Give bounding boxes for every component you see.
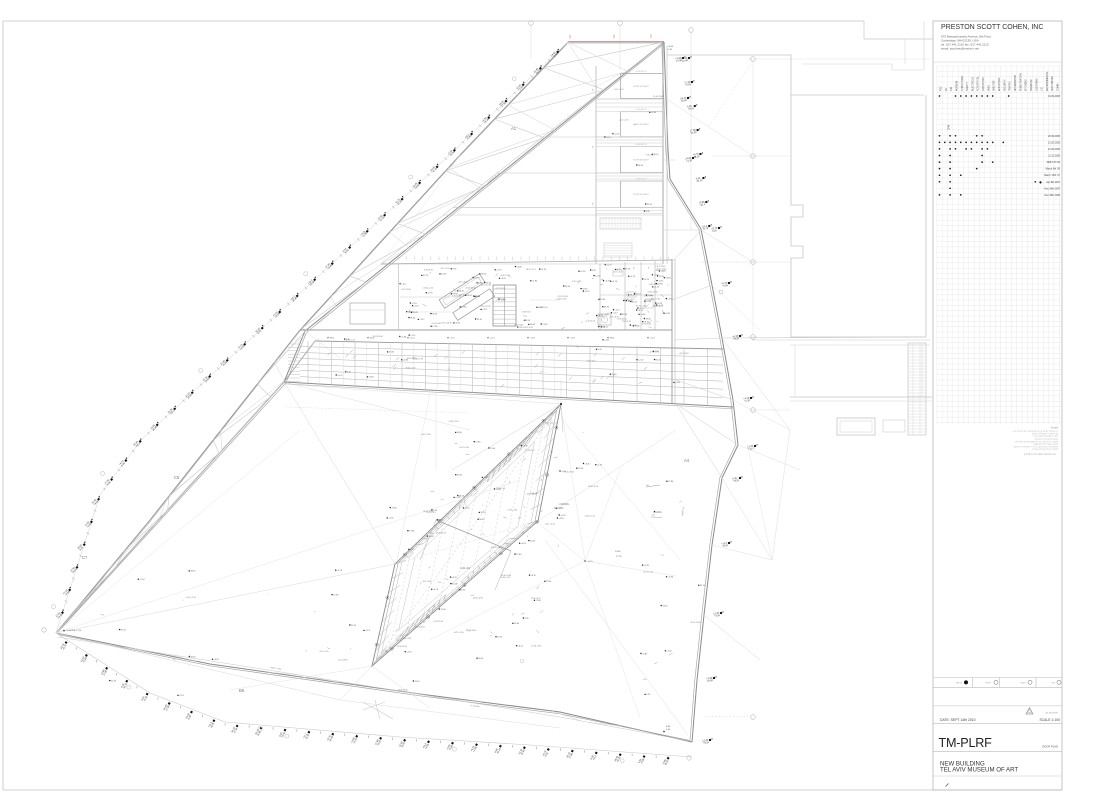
- svg-text:28.45: 28.45: [190, 571, 196, 573]
- svg-text:+4.55: +4.55: [501, 278, 507, 280]
- svg-text:12.40: 12.40: [546, 581, 552, 583]
- svg-text:12.40: 12.40: [490, 448, 496, 450]
- svg-text:24.60 32.10: 24.60 32.10: [466, 288, 476, 290]
- svg-text:FEB 17th 06: FEB 17th 06: [1047, 161, 1061, 164]
- svg-text:ראשוןי: ראשוןי: [1020, 683, 1026, 685]
- svg-text:+11.2: +11.2: [613, 313, 619, 315]
- svg-text:12.40 24.60: 12.40 24.60: [653, 96, 663, 98]
- svg-text:+11.2 +4.55: +11.2 +4.55: [440, 268, 450, 270]
- svg-text:28.45 +6.70: 28.45 +6.70: [405, 368, 415, 370]
- svg-text:9.35 17.80: 9.35 17.80: [452, 295, 461, 297]
- svg-text:PRESTON SCOTT COHEN, INC: PRESTON SCOTT COHEN, INC: [941, 24, 1043, 31]
- svg-text:FENESTRATION: FENESTRATION: [1019, 73, 1022, 91]
- svg-text:28.45: 28.45: [432, 313, 438, 315]
- svg-text:17.80: 17.80: [578, 468, 584, 470]
- svg-text:3850: 3850: [330, 338, 334, 340]
- svg-text:+2.10: +2.10: [523, 445, 529, 447]
- svg-text:PA: PA: [945, 88, 948, 91]
- svg-text:+3.85: +3.85: [642, 653, 648, 655]
- svg-text:+6.70 +11.2: +6.70 +11.2: [426, 512, 436, 514]
- svg-text:+8.25: +8.25: [644, 322, 650, 324]
- svg-text:WATERPROOF: WATERPROOF: [1014, 74, 1017, 91]
- svg-text:24.60: 24.60: [662, 605, 668, 607]
- svg-text:+24.85 SKYLT: +24.85 SKYLT: [635, 71, 648, 73]
- svg-text:32.10 +4.55: 32.10 +4.55: [636, 306, 646, 308]
- svg-text:32.10: 32.10: [415, 681, 421, 683]
- svg-text:17.80: 17.80: [409, 531, 415, 533]
- svg-text:+3.85: +3.85: [640, 314, 646, 316]
- svg-text:+6.70 17.80: +6.70 17.80: [401, 289, 411, 291]
- svg-text:32.10: 32.10: [647, 204, 653, 206]
- svg-text:10.05.2005: 10.05.2005: [1048, 141, 1061, 144]
- svg-text:SCALE 1:100: SCALE 1:100: [1039, 718, 1060, 722]
- svg-text:24.60 +2.10: 24.60 +2.10: [585, 515, 595, 517]
- svg-text:SHELTER: SHELTER: [994, 80, 996, 91]
- svg-text:24.60 28.45: 24.60 28.45: [415, 627, 425, 629]
- svg-text:SECURITY: SECURITY: [1004, 79, 1006, 91]
- svg-text:32.10: 32.10: [423, 275, 429, 277]
- svg-text:+6.70: +6.70: [337, 570, 343, 572]
- svg-text:+11.2: +11.2: [636, 294, 642, 296]
- svg-text:+4.55: +4.55: [406, 652, 412, 654]
- svg-text:+4.55: +4.55: [541, 269, 547, 271]
- svg-text:March 15th '07: March 15th '07: [1044, 174, 1060, 177]
- svg-text:28.45: 28.45: [459, 495, 465, 497]
- svg-text:+6.70: +6.70: [605, 281, 611, 283]
- svg-text:28.45: 28.45: [612, 374, 618, 376]
- svg-text:+6.70: +6.70: [531, 575, 537, 577]
- svg-text:+8.25 +3.85: +8.25 +3.85: [507, 510, 517, 512]
- svg-text:2%: 2%: [652, 515, 655, 517]
- svg-text:+3.85 12.40: +3.85 12.40: [448, 421, 458, 423]
- svg-text:+5.90: +5.90: [668, 577, 674, 579]
- svg-text:+24.85 SKYLT: +24.85 SKYLT: [635, 109, 648, 111]
- svg-text:DATE: SEPT 14th 2010: DATE: SEPT 14th 2010: [940, 718, 976, 722]
- svg-text:+3.85: +3.85: [542, 324, 548, 326]
- svg-text:24.60 32.10: 24.60 32.10: [588, 486, 598, 488]
- svg-text:+8.25 +6.70: +8.25 +6.70: [656, 269, 666, 271]
- svg-text:32.10: 32.10: [700, 585, 706, 587]
- svg-text:24.60 24.60: 24.60 24.60: [501, 575, 511, 577]
- svg-text:+4.55: +4.55: [668, 298, 674, 300]
- svg-text:+4.55 +11.2: +4.55 +11.2: [460, 568, 470, 570]
- svg-text:+11.2: +11.2: [401, 284, 407, 286]
- svg-text:+8.25: +8.25: [658, 280, 664, 282]
- svg-text:24.60: 24.60: [500, 299, 506, 301]
- svg-text:+14.8: +14.8: [530, 338, 535, 340]
- svg-text:מידות הבניין יש לבדוק הבניין כ: מידות הבניין יש לבדוק הבניין כל המידות כ…: [1014, 446, 1059, 449]
- svg-text:17.80: 17.80: [389, 352, 395, 354]
- svg-text:LIGHTNING: LIGHTNING: [1036, 78, 1038, 91]
- svg-text:24.60 17.80: 24.60 17.80: [648, 292, 658, 294]
- svg-text:9.35 32.10: 9.35 32.10: [560, 504, 569, 506]
- svg-text:+4.55 +8.25: +4.55 +8.25: [458, 281, 468, 283]
- svg-text:32.10 28.45: 32.10 28.45: [442, 323, 452, 325]
- svg-text:מרחבים וכו': מרחבים וכו': [1045, 711, 1058, 715]
- svg-text:ELECTRICAL: ELECTRICAL: [971, 76, 974, 91]
- svg-text:+3.85: +3.85: [651, 112, 657, 114]
- svg-text:+8.25 32.10: +8.25 32.10: [398, 690, 408, 692]
- svg-text:12.40 12.40: 12.40 12.40: [556, 299, 566, 301]
- svg-text:AUDITORIUM: AUDITORIUM: [1051, 76, 1054, 91]
- svg-text:24.60: 24.60: [369, 377, 375, 379]
- svg-text:+2.10: +2.10: [654, 287, 660, 289]
- svg-text:32.10 12.40: 32.10 12.40: [558, 296, 568, 298]
- svg-text:17.80: 17.80: [432, 326, 438, 328]
- svg-text:+6.70: +6.70: [337, 375, 343, 377]
- svg-text:Dec 29th 2008: Dec 29th 2008: [1044, 194, 1060, 197]
- svg-text:17.80: 17.80: [536, 600, 542, 602]
- svg-text:+4.55: +4.55: [667, 651, 673, 653]
- svg-text:28.45: 28.45: [410, 317, 416, 319]
- svg-text:+4.55: +4.55: [496, 489, 502, 491]
- svg-text:28.45: 28.45: [622, 314, 628, 316]
- svg-text:+15.2: +15.2: [450, 338, 455, 340]
- svg-text:+8.25: +8.25: [665, 313, 671, 315]
- svg-text:C5: C5: [174, 475, 180, 480]
- svg-text:28.45 28.45: 28.45 28.45: [436, 533, 446, 535]
- svg-text:10.45: 10.45: [668, 46, 674, 48]
- svg-text:+3.85: +3.85: [644, 565, 650, 567]
- svg-text:32.10: 32.10: [632, 301, 638, 303]
- svg-text:12.40: 12.40: [441, 274, 447, 276]
- svg-text:+4.55 +2.10: +4.55 +2.10: [186, 597, 196, 599]
- svg-text:+4.55 24.60: +4.55 24.60: [679, 353, 689, 355]
- svg-text:מידות באתר מידות לגרסאות: מידות באתר מידות לגרסאות: [1033, 443, 1058, 446]
- svg-text:TEL AVIV MUSEUM OF ART: TEL AVIV MUSEUM OF ART: [940, 766, 1018, 773]
- svg-text:11.22.2005: 11.22.2005: [1048, 155, 1060, 158]
- svg-text:9.35 +3.85: 9.35 +3.85: [572, 281, 581, 283]
- svg-text:KITCHENS: KITCHENS: [1026, 79, 1028, 91]
- svg-text:ROOF SKYLIGHT: ROOF SKYLIGHT: [633, 159, 649, 161]
- svg-text:+2.10 +4.55: +2.10 +4.55: [614, 89, 624, 91]
- svg-text:17.80 +3.85: 17.80 +3.85: [531, 646, 541, 648]
- svg-text:ENVIRONMENTAL: ENVIRONMENTAL: [1046, 71, 1049, 91]
- svg-text:+4.55 24.60: +4.55 24.60: [431, 323, 441, 325]
- svg-text:COMM.: COMM.: [1058, 83, 1060, 91]
- svg-text:+8.25 +2.10: +8.25 +2.10: [544, 423, 554, 425]
- svg-text:+6.70: +6.70: [630, 276, 636, 278]
- svg-text:32.10: 32.10: [653, 154, 659, 156]
- svg-text:27 26: 27 26: [616, 556, 622, 558]
- svg-text:17.80: 17.80: [516, 554, 522, 556]
- svg-text:SAFETY: SAFETY: [966, 82, 969, 91]
- svg-text:STRUCTURAL: STRUCTURAL: [961, 75, 964, 91]
- svg-text:+11.2: +11.2: [606, 137, 612, 139]
- svg-text:+15.2: +15.2: [650, 338, 655, 340]
- svg-text:+8.25 +11.2: +8.25 +11.2: [529, 493, 539, 495]
- svg-text:+3.85: +3.85: [517, 266, 523, 268]
- svg-text:+8.25 +2.10: +8.25 +2.10: [454, 632, 464, 634]
- svg-text:28.45: 28.45: [413, 312, 419, 314]
- svg-text:+4.55: +4.55: [557, 508, 563, 510]
- svg-text:ROOF PLAN: ROOF PLAN: [1042, 745, 1058, 749]
- svg-text:24.60 +3.85: 24.60 +3.85: [473, 597, 483, 599]
- svg-text:+4.55: +4.55: [559, 518, 565, 520]
- svg-text:+6.70 +8.25: +6.70 +8.25: [613, 272, 623, 274]
- svg-text:TM-PLRF: TM-PLRF: [939, 736, 993, 750]
- svg-text:+2.10 32.10: +2.10 32.10: [585, 321, 595, 323]
- svg-text:+2.10 12.40: +2.10 12.40: [433, 621, 443, 623]
- svg-text:24.60: 24.60: [565, 286, 571, 288]
- svg-text:ROOF SKYLIGHT: ROOF SKYLIGHT: [633, 86, 649, 88]
- svg-text:+8.25: +8.25: [518, 646, 524, 648]
- svg-text:+11.2 32.10: +11.2 32.10: [495, 288, 505, 290]
- svg-text:+6.70 9.35: +6.70 9.35: [525, 450, 534, 452]
- svg-text:TRAFFIC: TRAFFIC: [1009, 81, 1012, 91]
- svg-text:+6.15: +6.15: [588, 561, 594, 563]
- svg-text:+6.70 28.45: +6.70 28.45: [641, 324, 651, 326]
- svg-text:B6: B6: [239, 688, 245, 693]
- svg-text:+4.55 12.40: +4.55 12.40: [481, 285, 491, 287]
- svg-text:19.05: 19.05: [615, 551, 621, 553]
- svg-text:+6.70: +6.70: [433, 589, 439, 591]
- svg-text:הערות: הערות: [1051, 427, 1059, 430]
- svg-text:28.45: 28.45: [646, 318, 652, 320]
- svg-text:+4.55: +4.55: [604, 340, 610, 342]
- svg-text:ROOF SKYLIGHT: ROOF SKYLIGHT: [633, 194, 649, 196]
- svg-text:17.80: 17.80: [475, 442, 481, 444]
- svg-text:HANDICAP: HANDICAP: [1030, 79, 1033, 91]
- svg-text:17.80: 17.80: [392, 507, 398, 509]
- svg-text:+3.85 17.80: +3.85 17.80: [420, 434, 430, 436]
- svg-text:12.40: 12.40: [111, 680, 117, 682]
- svg-text:19.09.2005: 19.09.2005: [1048, 95, 1061, 98]
- svg-text:+4.55 9.35: +4.55 9.35: [524, 327, 533, 329]
- svg-text:+4.55: +4.55: [214, 659, 220, 661]
- svg-text:24.60: 24.60: [666, 278, 672, 280]
- svg-text:28.45: 28.45: [481, 274, 487, 276]
- svg-text:32.10: 32.10: [452, 583, 458, 585]
- svg-text:+4.55 +8.25: +4.55 +8.25: [609, 317, 619, 319]
- svg-text:24.60: 24.60: [638, 165, 644, 167]
- svg-text:CPM: CPM: [949, 125, 951, 130]
- svg-text:+6.70: +6.70: [496, 270, 502, 272]
- svg-text:32.10: 32.10: [477, 319, 483, 321]
- svg-text:MUSEUM: MUSEUM: [957, 81, 959, 91]
- svg-text:+15.2: +15.2: [490, 338, 495, 340]
- svg-text:+11.2: +11.2: [482, 309, 488, 311]
- svg-text:+11.2 12.40: +11.2 12.40: [422, 581, 432, 583]
- svg-text:17.80 9.35: 17.80 9.35: [522, 312, 531, 314]
- svg-text:+6.70: +6.70: [452, 577, 458, 579]
- svg-text:+3.85: +3.85: [538, 307, 544, 309]
- svg-text:28.45 +11.2: 28.45 +11.2: [526, 269, 536, 271]
- svg-text:32.10 12.40: 32.10 12.40: [690, 622, 700, 624]
- svg-text:+6.70 +4.55: +6.70 +4.55: [643, 571, 653, 573]
- svg-text:+3.85 +3.85: +3.85 +3.85: [650, 298, 660, 300]
- svg-text:כל המידות יש לבדוק יש לבדוק מי: כל המידות יש לבדוק יש לבדוק מידות יש לבד…: [1012, 430, 1058, 433]
- svg-text:12.40: 12.40: [595, 275, 601, 277]
- svg-text:+8.25: +8.25: [455, 323, 461, 325]
- svg-text:+4.55: +4.55: [429, 536, 435, 538]
- svg-text:מידות כל המידות מידות הבניין: מידות כל המידות מידות הבניין: [1032, 448, 1059, 451]
- svg-text:+6.70 +3.85: +6.70 +3.85: [459, 447, 469, 449]
- svg-text:PSC: PSC: [941, 86, 943, 91]
- svg-text:24.60: 24.60: [478, 658, 484, 660]
- svg-text:32.10 28.45: 32.10 28.45: [564, 472, 574, 474]
- svg-text:+3.85 17.80: +3.85 17.80: [500, 275, 510, 277]
- svg-text:+3.85: +3.85: [600, 326, 606, 328]
- svg-text:+11.2: +11.2: [414, 306, 420, 308]
- svg-text:17.80 9.35: 17.80 9.35: [622, 321, 631, 323]
- svg-text:28.45: 28.45: [191, 656, 197, 658]
- svg-text:32.10: 32.10: [121, 629, 127, 631]
- svg-text:email: pscohen@verizon.net: email: pscohen@verizon.net: [941, 47, 979, 51]
- svg-text:+8.25: +8.25: [657, 303, 663, 305]
- svg-text:24.60 +4.55: 24.60 +4.55: [500, 577, 510, 579]
- svg-text:17.80: 17.80: [333, 595, 339, 597]
- svg-text:3850: 3850: [610, 338, 614, 340]
- svg-text:+4.55: +4.55: [521, 543, 527, 545]
- svg-text:C.E.: C.E.: [1042, 86, 1044, 91]
- svg-text:+4.55: +4.55: [597, 465, 603, 467]
- svg-text:+4.55: +4.55: [388, 518, 394, 520]
- svg-text:+11.2 +2.10: +11.2 +2.10: [319, 651, 329, 653]
- svg-text:+3.85: +3.85: [632, 325, 638, 327]
- svg-text:+2.10: +2.10: [638, 360, 644, 362]
- svg-text:C7: C7: [82, 555, 88, 560]
- svg-text:+0.00 B.M. 12.05: +0.00 B.M. 12.05: [66, 630, 82, 632]
- svg-text:10.26.2005: 10.26.2005: [1048, 148, 1061, 151]
- svg-text:24.60 24.60: 24.60 24.60: [373, 336, 383, 338]
- svg-text:+15.2: +15.2: [410, 338, 415, 340]
- svg-text:+6.70: +6.70: [612, 281, 618, 283]
- svg-text:A1: A1: [511, 126, 517, 131]
- svg-text:28.45: 28.45: [459, 291, 465, 293]
- svg-text:24.60 9.35: 24.60 9.35: [587, 361, 596, 363]
- svg-text:+14.8: +14.8: [570, 338, 575, 340]
- svg-text:+6.70: +6.70: [658, 305, 664, 307]
- svg-text:28.45: 28.45: [479, 519, 485, 521]
- svg-text:12.40: 12.40: [497, 637, 503, 639]
- svg-text:ACOUSTICAL: ACOUSTICAL: [977, 76, 980, 91]
- svg-text:9.35 28.45: 9.35 28.45: [424, 269, 433, 271]
- svg-text:Nov 24th 2007: Nov 24th 2007: [1044, 187, 1060, 190]
- svg-text:24.60: 24.60: [457, 475, 463, 477]
- svg-text:28.45: 28.45: [530, 324, 536, 326]
- svg-text:לביצוע: לביצוע: [956, 682, 963, 685]
- svg-text:28.45: 28.45: [630, 295, 636, 297]
- svg-text:32.10: 32.10: [656, 359, 662, 361]
- svg-text:1%: 1%: [646, 485, 649, 487]
- svg-text:32.10: 32.10: [530, 540, 536, 542]
- svg-text:32.10: 32.10: [625, 269, 631, 271]
- svg-text:+6.70: +6.70: [580, 271, 586, 273]
- svg-text:לפני כל המידות מידות הבניין: לפני כל המידות מידות הבניין: [1033, 435, 1058, 438]
- svg-text:P.M: P.M: [951, 87, 953, 91]
- svg-text:+3.85: +3.85: [401, 336, 407, 338]
- svg-text:+2.10: +2.10: [614, 134, 620, 136]
- svg-text:+6.70: +6.70: [638, 310, 644, 312]
- svg-text:A4: A4: [684, 458, 690, 463]
- svg-text:32.10: 32.10: [351, 625, 357, 627]
- svg-text:מידות יש לבדוק כל המידות: מידות יש לבדוק כל המידות: [1035, 438, 1059, 441]
- svg-text:17.80: 17.80: [658, 283, 664, 285]
- svg-text:9.35 12.40: 9.35 12.40: [491, 547, 500, 549]
- svg-text:+4.55: +4.55: [644, 279, 650, 281]
- svg-text:+4.55: +4.55: [455, 497, 461, 499]
- svg-text:+24.85 SKYLT: +24.85 SKYLT: [635, 144, 648, 146]
- svg-text:32.10: 32.10: [457, 432, 463, 434]
- svg-text:+6.70: +6.70: [585, 291, 591, 293]
- svg-text:+2.10: +2.10: [412, 303, 418, 305]
- svg-text:לאישור: לאישור: [985, 682, 992, 685]
- svg-text:March 6th '06: March 6th '06: [1046, 168, 1061, 171]
- svg-text:יש לבדוק כל המידות יש לבדוק: יש לבדוק כל המידות יש לבדוק: [1032, 433, 1058, 436]
- svg-text:ELEVATORS: ELEVATORS: [998, 77, 1001, 91]
- svg-text:32.10: 32.10: [481, 512, 487, 514]
- svg-text:HVAC: HVAC: [987, 84, 990, 91]
- svg-text:+4.55 +6.70: +4.55 +6.70: [545, 524, 555, 526]
- svg-text:+11.2 +4.55: +11.2 +4.55: [619, 119, 629, 121]
- svg-text:Jan 9th 2007: Jan 9th 2007: [1046, 181, 1060, 184]
- svg-text:+3.85: +3.85: [646, 301, 652, 303]
- svg-text:SANITATION: SANITATION: [982, 77, 985, 91]
- svg-text:+8.25: +8.25: [675, 382, 681, 384]
- svg-text:12.40 +4.55: 12.40 +4.55: [401, 638, 411, 640]
- svg-text:17.80 24.60: 17.80 24.60: [397, 646, 407, 648]
- svg-text:מידות כל המידות הבניין לגרסאות: מידות כל המידות הבניין לגרסאות הבניין יש…: [1015, 440, 1058, 443]
- svg-text:12.40 17.80: 12.40 17.80: [413, 359, 423, 361]
- svg-text:+9.80: +9.80: [667, 49, 673, 51]
- svg-text:הם וכפום של להשוח חורים מודפרק: הם וכפום של להשוח חורים מודפרק: [1024, 453, 1057, 456]
- svg-text:28.45: 28.45: [604, 307, 610, 309]
- svg-text:17.80: 17.80: [648, 295, 654, 297]
- svg-text:20.09.2005: 20.09.2005: [1048, 135, 1061, 138]
- svg-text:+6.70 +8.25: +6.70 +8.25: [598, 315, 608, 317]
- svg-text:+6.70: +6.70: [427, 293, 433, 295]
- svg-text:24.60 +2.10: 24.60 +2.10: [423, 287, 433, 289]
- svg-text:+4.55: +4.55: [560, 515, 566, 517]
- svg-text:+3.85: +3.85: [532, 281, 538, 283]
- svg-text:17.80: 17.80: [668, 481, 674, 483]
- svg-text:32.10: 32.10: [465, 508, 471, 510]
- svg-text:+3.85: +3.85: [625, 300, 631, 302]
- svg-text:+2.10 28.45: +2.10 28.45: [338, 660, 348, 662]
- svg-text:+8.25: +8.25: [585, 463, 591, 465]
- svg-text:32.10 17.80: 32.10 17.80: [481, 306, 491, 308]
- svg-text:+6.70: +6.70: [474, 277, 480, 279]
- svg-text:12.40: 12.40: [600, 299, 606, 301]
- svg-text:+2.10: +2.10: [140, 579, 146, 581]
- svg-text:17.80: 17.80: [461, 307, 467, 309]
- svg-text:+6.70: +6.70: [606, 265, 612, 267]
- svg-text:12.40: 12.40: [441, 609, 447, 611]
- svg-text:24.60: 24.60: [514, 623, 520, 625]
